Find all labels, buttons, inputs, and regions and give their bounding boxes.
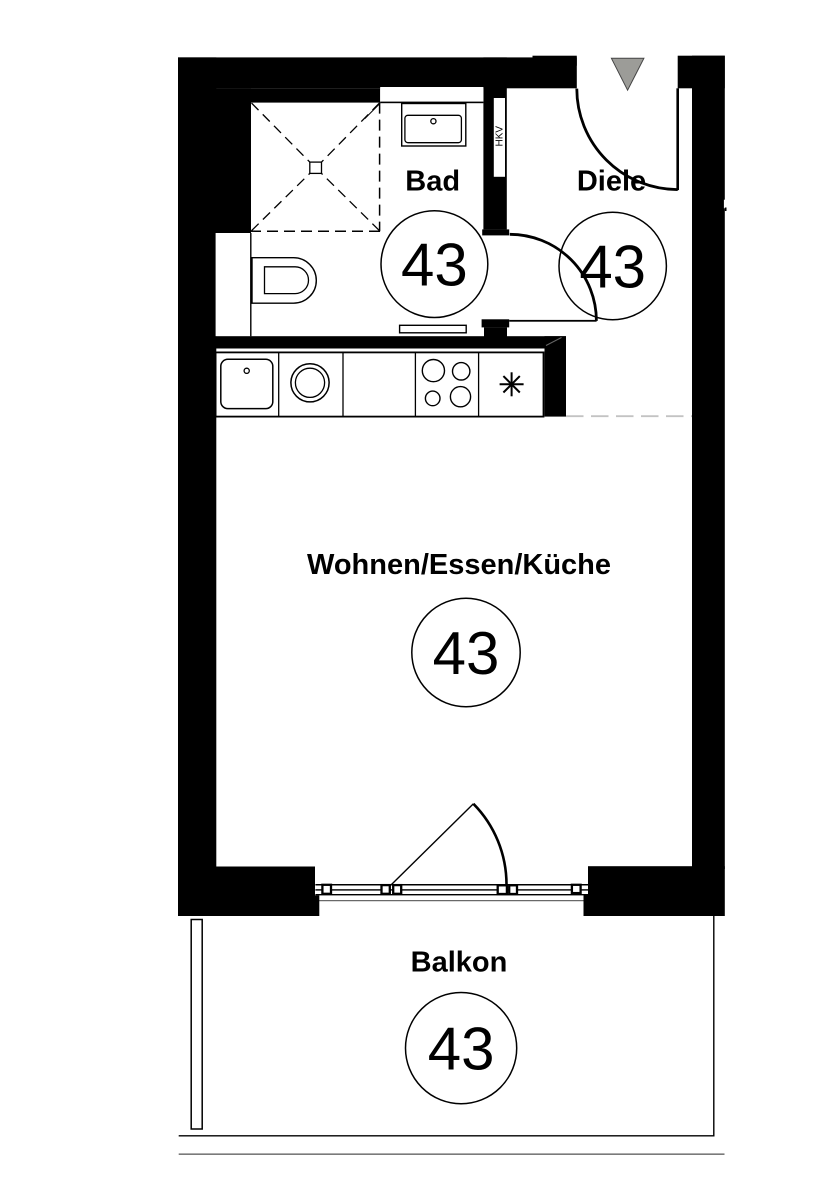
svg-text:43: 43 xyxy=(428,1016,495,1083)
svg-text:43: 43 xyxy=(401,232,468,299)
svg-text:43: 43 xyxy=(579,234,646,301)
svg-text:43: 43 xyxy=(433,620,500,687)
svg-text:Balkon: Balkon xyxy=(411,946,508,978)
svg-text:Wohnen/Essen/Küche: Wohnen/Essen/Küche xyxy=(307,549,611,581)
svg-text:HKV: HKV xyxy=(495,126,506,147)
svg-text:Bad: Bad xyxy=(405,166,460,198)
